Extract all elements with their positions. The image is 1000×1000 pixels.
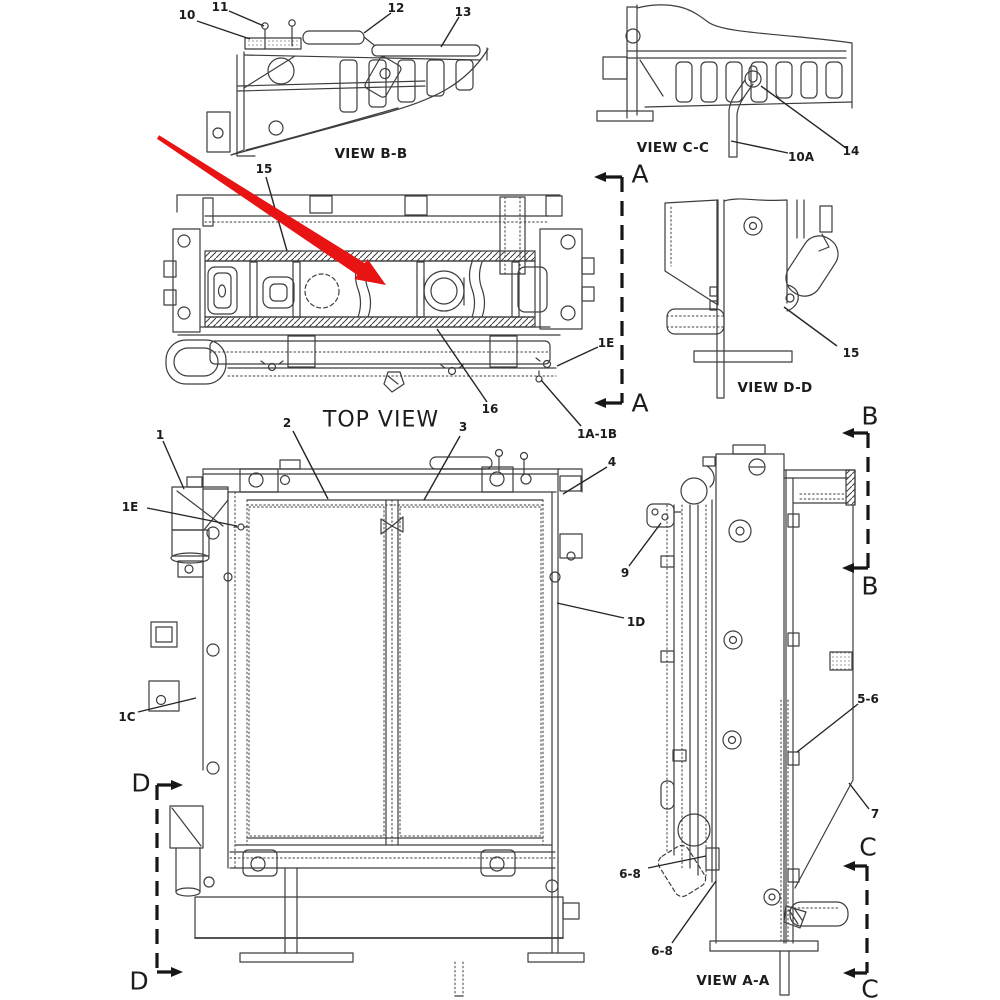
top-view-drawing xyxy=(164,195,594,392)
view-dd-title: VIEW D-D xyxy=(738,380,813,396)
view-cc-drawing xyxy=(597,5,852,157)
callout-4: 4 xyxy=(608,455,616,469)
callout-11: 11 xyxy=(212,0,229,14)
callout-9: 9 xyxy=(621,566,629,580)
section-c-top-label: C xyxy=(859,833,876,862)
section-d-bottom-label: D xyxy=(129,967,148,996)
callout-1a-1b: 1A-1B xyxy=(577,427,617,441)
callout-1e-top: 1E xyxy=(598,336,615,350)
callout-1d: 1D xyxy=(627,615,645,629)
callout-14: 14 xyxy=(843,144,860,158)
section-d-top-label: D xyxy=(131,769,150,798)
callout-10a: 10A xyxy=(788,150,814,164)
callout-13: 13 xyxy=(455,5,472,19)
callout-15-top: 15 xyxy=(256,162,273,176)
section-a-bottom-label: A xyxy=(631,389,648,418)
callout-16: 16 xyxy=(482,402,499,416)
view-aa-title: VIEW A-A xyxy=(696,973,769,989)
diagram-page: VIEW B-B VIEW C-C TOP VIEW VIEW D-D VIEW… xyxy=(0,0,1000,1000)
view-aa-drawing xyxy=(647,445,855,995)
callout-1c: 1C xyxy=(118,710,135,724)
section-c-bottom-label: C xyxy=(861,975,878,1000)
callout-2: 2 xyxy=(283,416,291,430)
callout-10: 10 xyxy=(179,8,196,22)
view-bb-title: VIEW B-B xyxy=(335,146,408,162)
callout-6-8-lower: 6-8 xyxy=(651,944,673,958)
callout-6-8-upper: 6-8 xyxy=(619,867,641,881)
callout-5-6: 5-6 xyxy=(857,692,879,706)
callout-15-dd: 15 xyxy=(843,346,860,360)
callout-1e-front: 1E xyxy=(122,500,139,514)
section-b-top-label: B xyxy=(861,402,878,431)
callout-12: 12 xyxy=(388,1,405,15)
view-cc-title: VIEW C-C xyxy=(637,140,709,156)
callout-3: 3 xyxy=(459,420,467,434)
view-dd-drawing xyxy=(665,199,845,398)
section-a-top-label: A xyxy=(631,160,648,189)
callout-1: 1 xyxy=(156,428,164,442)
top-view-title: TOP VIEW xyxy=(323,408,439,433)
section-line-a xyxy=(594,172,622,408)
section-b-bottom-label: B xyxy=(861,572,878,601)
front-view-drawing xyxy=(149,450,584,997)
callout-7: 7 xyxy=(871,807,879,821)
